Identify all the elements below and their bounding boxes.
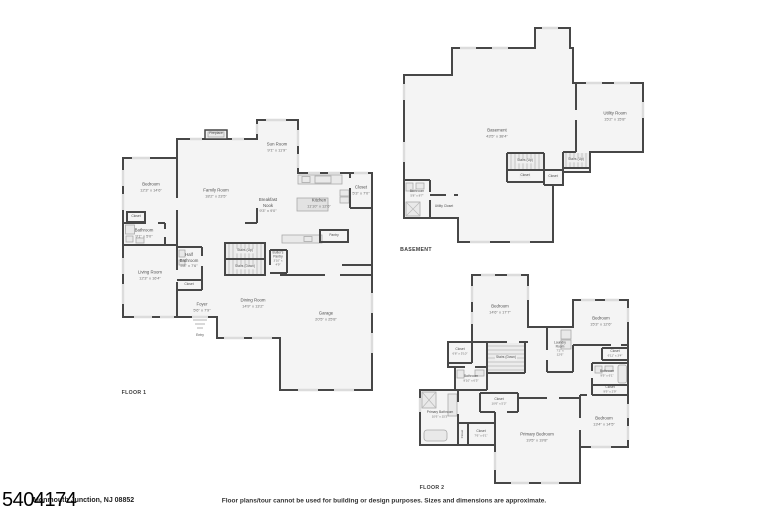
room-label-stairs-up-right: Stairs (Up) (567, 158, 585, 162)
room-label-closet-right-2: Closet 9'9" x 2'9" (603, 386, 616, 394)
room-dims: 5'3" x 7'0" (352, 191, 369, 196)
room-name: Bedroom (590, 317, 612, 322)
room-dims: 10'6" x 5'3" (492, 402, 507, 406)
room-name: Stairs (Up) (568, 158, 584, 162)
room-label-family-room: Family Room 18'2" x 23'5" (203, 189, 228, 199)
room-label-primary-bathroom: Primary Bathroom 10'6" x 15'3" (427, 411, 454, 419)
room-label-bathroom: Bathroom 9'1" x 5'0" (135, 229, 154, 239)
room-label-basement-bathroom: Bathroom 5'8" x 8'7" (410, 190, 424, 198)
floor1-plan-drawing (120, 118, 376, 394)
room-dims: 6'8" x 5'10" (453, 352, 468, 356)
room-dims: 15'3" x 12'6" (590, 322, 612, 327)
room-label-utility-room: Utility Room 15'2" x 15'8" (603, 112, 626, 122)
room-label-utility-closet: Utility Closet (435, 205, 453, 209)
room-dims: 12'3" x 14'6" (140, 188, 162, 193)
room-dims: 14'9" x 13'2" (241, 304, 266, 309)
room-label-entry: Entry (196, 334, 204, 338)
room-dims: 13'4" x 14'5" (593, 422, 615, 427)
room-label-bedroom-3: Bedroom 13'4" x 14'5" (593, 417, 615, 427)
room-label-closet-2: Closet (547, 175, 559, 179)
basement-plan-drawing (400, 22, 665, 257)
basement-outline (404, 28, 643, 242)
room-label-closet-b: Closet 7'6" x 6'1" (474, 430, 487, 438)
room-label-closet-linen: Closet (461, 430, 465, 439)
room-dims: 5'8" x 7'6" (180, 264, 199, 269)
room-dims: 7'2" x 12'6" (553, 349, 567, 357)
room-name: Utility Room (603, 112, 626, 117)
room-name: Utility Closet (435, 205, 453, 209)
room-label-bedroom-2: Bedroom 15'3" x 12'6" (590, 317, 612, 327)
room-dims: 19'5" x 19'8" (520, 438, 554, 443)
room-label-bedroom-1: Bedroom 14'6" x 17'7" (489, 305, 511, 315)
room-dims: 9'3" x 9'0" (257, 209, 279, 214)
room-name: Pantry (329, 234, 339, 238)
floor-plan-page: Fireplace Sun Room 9'1" x 11'9" Bedroom … (0, 0, 768, 512)
room-label-bedroom: Bedroom 12'3" x 14'6" (140, 183, 162, 193)
room-name: Butler's Pantry (271, 251, 284, 259)
room-label-stairs-down: Stairs (Down) (234, 265, 256, 269)
room-label-stairs-up-center: Stairs (Up) (516, 159, 534, 163)
room-label-pantry: Pantry (329, 234, 339, 238)
room-name: Closet (548, 175, 557, 179)
room-name: Entry (196, 334, 204, 338)
room-dims: 6'11" x 3'4" (608, 354, 623, 358)
floor1-plan: Fireplace Sun Room 9'1" x 11'9" Bedroom … (120, 118, 376, 394)
room-label-foyer: Foyer 5'6" x 7'9" (193, 303, 210, 313)
listing-id: 5404174 (2, 490, 76, 510)
room-label-closet-right: Closet 6'11" x 3'4" (608, 350, 623, 358)
room-name: Closet (352, 186, 369, 191)
room-name: Primary Bedroom (520, 433, 554, 438)
room-name: Bathroom (135, 229, 154, 234)
room-label-breakfast-nook: Breakfast Nook 9'3" x 9'0" (257, 198, 279, 214)
room-name: Bedroom (489, 305, 511, 310)
room-dims: 9'9" x 2'9" (603, 390, 616, 394)
room-label-fireplace: Fireplace (209, 132, 223, 136)
room-name: Stairs (Up) (517, 159, 533, 163)
room-label-closet-center: Closet (519, 174, 531, 178)
room-label-butlers-pantry: Butler's Pantry 3'10" x 4'9" (271, 251, 284, 267)
room-name: Living Room (138, 271, 162, 276)
room-dims: 5'6" x 7'9" (193, 308, 210, 313)
room-label-bathroom-left: Bathroom 8'10" x 6'5" (464, 375, 479, 383)
room-label-stairs-up: Stairs (Up) (236, 249, 254, 253)
room-name: Sun Room (267, 143, 287, 148)
floor2-outline (420, 275, 628, 483)
room-name: Bedroom (593, 417, 615, 422)
room-label-garage: Garage 20'5" x 25'8" (315, 312, 337, 322)
room-dims: 9'1" x 11'9" (267, 148, 287, 153)
room-dims: 11'10" x 12'6" (307, 204, 331, 209)
room-label-bathroom-right: Bathroom 9'9" x 6'1" (600, 370, 614, 378)
room-dims: 9'1" x 5'0" (135, 234, 154, 239)
room-dims: 10'6" x 15'3" (427, 415, 454, 419)
room-name: Family Room (203, 189, 228, 194)
room-name: Closet (131, 215, 140, 219)
room-dims: 18'2" x 23'5" (203, 194, 228, 199)
floor1-entry-steps (193, 320, 207, 328)
room-name: Bedroom (140, 183, 162, 188)
room-label-dining-room: Dining Room 14'9" x 13'2" (241, 299, 266, 309)
room-name: Laundry Room (553, 341, 567, 349)
basement-title: BASEMENT (400, 247, 432, 253)
room-name: Breakfast Nook (257, 198, 279, 209)
room-dims: 20'5" x 25'8" (315, 317, 337, 322)
room-name: Closet (520, 174, 529, 178)
room-label-stairs-down: Stairs (Down) (495, 356, 517, 360)
floor2-plan: Bedroom 14'6" x 17'7" Bedroom 15'3" x 12… (415, 272, 665, 487)
room-name: Closet (184, 283, 193, 287)
room-dims: 12'3" x 16'4" (138, 276, 162, 281)
room-dims: 43'5" x 38'4" (486, 134, 508, 139)
floor2-title: FLOOR 2 (420, 485, 445, 491)
room-label-basement: Basement 43'5" x 38'4" (486, 129, 508, 139)
disclaimer-text: Floor plans/tour cannot be used for buil… (222, 498, 546, 505)
room-label-primary-bedroom: Primary Bedroom 19'5" x 19'8" (520, 433, 554, 443)
room-label-closet-left: Closet 6'8" x 5'10" (453, 348, 468, 356)
room-name: Half Bathroom (180, 253, 199, 264)
room-label-sun-room: Sun Room 9'1" x 11'9" (267, 143, 287, 153)
room-name: Stairs (Down) (496, 356, 516, 360)
room-name: Fireplace (209, 132, 223, 136)
room-dims: 7'6" x 6'1" (474, 434, 487, 438)
room-label-closet-half-bath: Closet (184, 283, 193, 287)
room-dims: 3'10" x 4'9" (271, 259, 284, 267)
room-dims: 5'8" x 8'7" (410, 194, 424, 198)
room-label-kitchen: Kitchen 11'10" x 12'6" (307, 199, 331, 209)
room-label-closet-center-f2: Closet 10'6" x 5'3" (492, 398, 507, 406)
room-dims: 14'6" x 17'7" (489, 310, 511, 315)
room-label-half-bathroom: Half Bathroom 5'8" x 7'6" (180, 253, 199, 269)
room-label-closet-kitchen: Closet 5'3" x 7'0" (352, 186, 369, 196)
room-dims: 8'10" x 6'5" (464, 379, 479, 383)
room-label-closet-small: Closet (131, 215, 140, 219)
room-dims: 15'2" x 15'8" (603, 117, 626, 122)
room-name: Closet (461, 430, 465, 439)
floor1-title: FLOOR 1 (122, 390, 147, 396)
room-label-laundry-room: Laundry Room 7'2" x 12'6" (553, 341, 567, 357)
room-name: Basement (486, 129, 508, 134)
room-name: Stairs (Up) (237, 249, 253, 253)
room-name: Stairs (Down) (235, 265, 255, 269)
room-dims: 9'9" x 6'1" (600, 374, 614, 378)
room-label-living-room: Living Room 12'3" x 16'4" (138, 271, 162, 281)
basement-plan: Basement 43'5" x 38'4" Utility Room 15'2… (400, 22, 665, 257)
room-name: Dining Room (241, 299, 266, 304)
floor2-plan-drawing (415, 272, 665, 487)
